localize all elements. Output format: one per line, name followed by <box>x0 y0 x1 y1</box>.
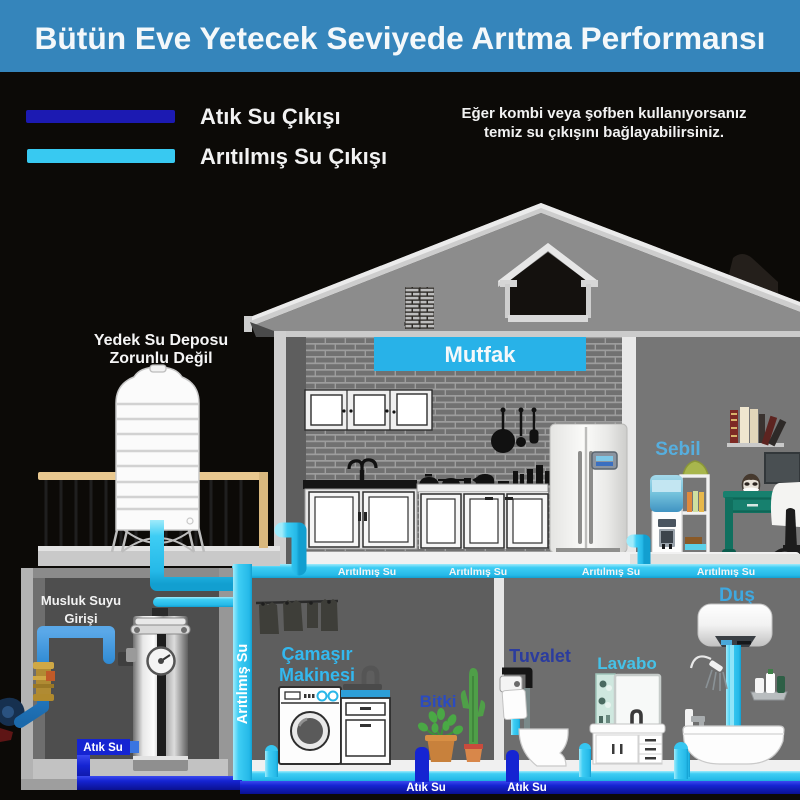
svg-text:temiz su çıkışını bağlayabilir: temiz su çıkışını bağlayabilirsiniz. <box>484 124 724 141</box>
svg-text:Eğer kombi veya şofben kullanı: Eğer kombi veya şofben kullanıyorsanız <box>461 105 746 122</box>
svg-text:Girişi: Girişi <box>64 611 97 626</box>
svg-text:Atık Su: Atık Su <box>406 782 446 794</box>
svg-text:Arıtılmış Su Çıkışı: Arıtılmış Su Çıkışı <box>200 144 387 169</box>
svg-text:Zorunlu Değil: Zorunlu Değil <box>109 350 212 367</box>
svg-text:Lavabo: Lavabo <box>597 654 657 673</box>
svg-text:Yedek Su Deposu: Yedek Su Deposu <box>94 332 228 349</box>
svg-text:Arıtılmış Su: Arıtılmış Su <box>582 566 640 578</box>
svg-text:Atık Su Çıkışı: Atık Su Çıkışı <box>200 104 341 129</box>
svg-text:Tuvalet: Tuvalet <box>509 646 571 666</box>
svg-text:Duş: Duş <box>719 585 755 606</box>
svg-text:Atık Su: Atık Su <box>507 782 547 794</box>
svg-text:Sebil: Sebil <box>655 439 700 460</box>
svg-text:Çamaşır: Çamaşır <box>281 644 352 664</box>
svg-text:Atık Su: Atık Su <box>83 742 123 754</box>
svg-text:Mutfak: Mutfak <box>445 342 517 367</box>
svg-text:Arıtılmış Su: Arıtılmış Su <box>449 566 507 578</box>
svg-text:Makinesi: Makinesi <box>279 665 355 685</box>
svg-text:Arıtılmış Su: Arıtılmış Su <box>235 644 251 725</box>
svg-text:Musluk Suyu: Musluk Suyu <box>41 593 121 608</box>
svg-text:Bitki: Bitki <box>420 692 457 711</box>
svg-text:Bütün Eve Yetecek Seviyede Arı: Bütün Eve Yetecek Seviyede Arıtma Perfor… <box>35 20 766 56</box>
svg-text:Arıtılmış Su: Arıtılmış Su <box>697 566 755 578</box>
svg-text:Arıtılmış Su: Arıtılmış Su <box>338 566 396 578</box>
